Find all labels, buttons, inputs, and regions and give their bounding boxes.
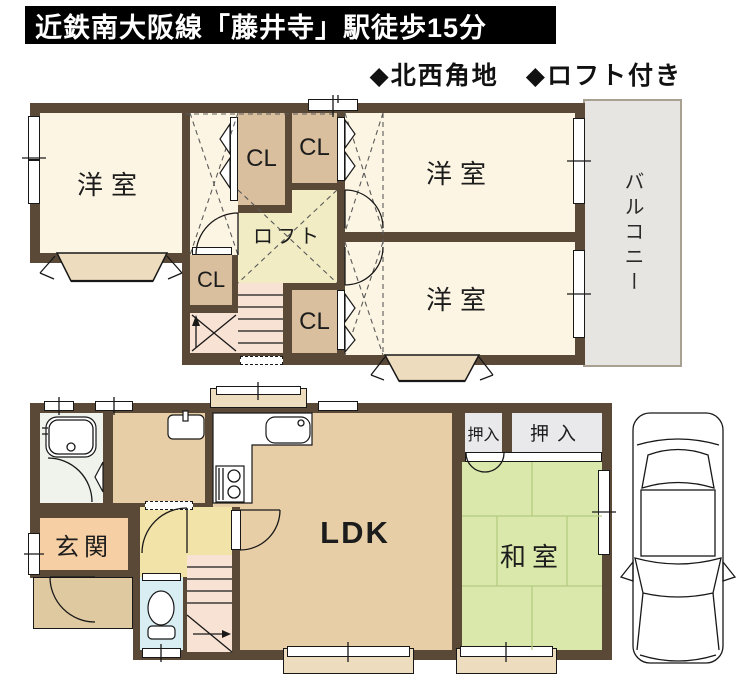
window [28, 116, 40, 160]
closet-label: CL [299, 134, 330, 162]
stairs-1f [187, 555, 232, 652]
hall [140, 507, 232, 555]
oshiire-2: 押入 [512, 413, 602, 452]
balcony: バルコニー [583, 99, 682, 367]
entrance-hall-wall [128, 518, 140, 570]
window [318, 401, 358, 411]
closet-a: CL [238, 113, 285, 205]
closet-door [192, 247, 232, 255]
window [598, 470, 610, 555]
entrance-porch [33, 577, 133, 629]
toilet-door [142, 573, 181, 581]
room-label: 洋室 [426, 154, 494, 191]
ldk-label: LDK [320, 515, 390, 551]
oshiire-1: 押入 [465, 413, 502, 452]
toilet-room [140, 577, 183, 650]
closet-label: CL [299, 308, 330, 336]
window [44, 401, 74, 411]
floor-plan: 近鉄南大阪線「藤井寺」駅徒歩15分 ◆北西角地 ◆ロフト付き バルコニー 洋室 … [0, 0, 745, 689]
window [142, 648, 181, 658]
ldk-label-box: LDK [295, 513, 415, 553]
station-banner: 近鉄南大阪線「藤井寺」駅徒歩15分 [25, 6, 556, 44]
oshiire-label: 押入 [467, 421, 499, 445]
floor2-cutout [30, 263, 182, 365]
feature-line: ◆北西角地 ◆ロフト付き [370, 56, 682, 92]
loft-label: ロフト [253, 220, 322, 249]
bathroom [40, 413, 103, 503]
stairs-2f-winder [190, 313, 238, 353]
sliding-door [465, 452, 602, 462]
western-room-nw: 洋室 [40, 113, 182, 253]
western-room-ne: 洋室 [345, 113, 575, 232]
closet-c: CL [190, 255, 232, 305]
closet-b: CL [292, 113, 337, 183]
window [573, 250, 585, 338]
washroom-opening [145, 501, 193, 510]
entrance-door [28, 533, 40, 575]
closet-door [230, 117, 238, 201]
entrance-room: 玄関 [40, 518, 128, 570]
window [308, 99, 358, 111]
japanese-room-label: 和室 [500, 537, 564, 574]
room-label: 洋室 [426, 280, 494, 317]
window [573, 118, 585, 204]
closet-door [337, 290, 345, 350]
oshiire-label: 押入 [530, 419, 584, 446]
window [216, 386, 301, 395]
closet-d: CL [292, 290, 337, 353]
closet-label: CL [246, 145, 277, 173]
window [287, 646, 410, 657]
room-label: 洋室 [77, 165, 145, 202]
door-opening [231, 510, 241, 550]
entrance-label: 玄関 [55, 527, 113, 562]
western-room-se: 洋室 [345, 242, 575, 355]
washroom [113, 413, 205, 503]
window [28, 160, 40, 204]
closet-label: CL [197, 267, 225, 293]
stair-opening [240, 356, 283, 365]
japanese-room-label-box: 和室 [462, 535, 602, 575]
window [95, 401, 133, 411]
loft-label-box: ロフト [238, 214, 337, 254]
balcony-label: バルコニー [618, 171, 647, 296]
stairs-2f-run [238, 283, 283, 353]
window [460, 646, 553, 657]
car-icon [621, 413, 735, 663]
closet-door [337, 117, 345, 181]
